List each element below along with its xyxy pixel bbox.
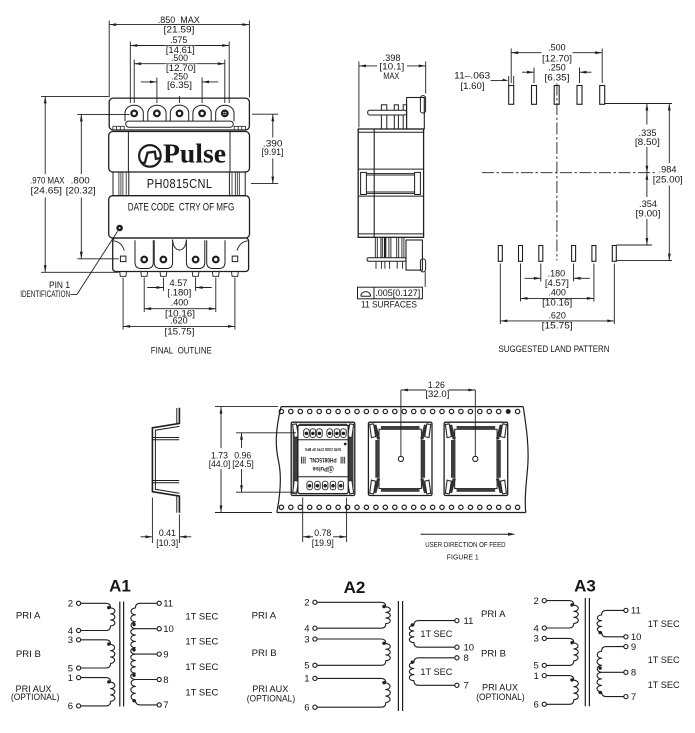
svg-text:11: 11 xyxy=(631,606,641,617)
svg-text:.005[0.127]: .005[0.127] xyxy=(375,288,420,298)
svg-text:[24.65]: [24.65] xyxy=(31,185,63,196)
svg-text:6: 6 xyxy=(534,700,539,711)
svg-text:8: 8 xyxy=(163,675,168,686)
svg-text:2: 2 xyxy=(68,599,73,610)
svg-text:1T SEC: 1T SEC xyxy=(420,667,452,678)
svg-text:(OPTIONAL): (OPTIONAL) xyxy=(11,692,60,702)
svg-text:PRI A: PRI A xyxy=(481,609,506,620)
svg-text:.400: .400 xyxy=(171,298,189,309)
svg-text:3: 3 xyxy=(304,634,309,645)
svg-text:PRI B: PRI B xyxy=(16,649,41,660)
svg-text:4: 4 xyxy=(534,623,539,634)
svg-text:PRI B: PRI B xyxy=(252,648,277,659)
svg-text:PRI A: PRI A xyxy=(252,611,277,622)
svg-text:[10.3]: [10.3] xyxy=(156,538,178,549)
svg-text:11: 11 xyxy=(163,599,173,610)
svg-text:(OPTIONAL): (OPTIONAL) xyxy=(476,692,525,702)
svg-text:[44.0]: [44.0] xyxy=(209,459,231,470)
svg-text:1T SEC: 1T SEC xyxy=(648,680,680,691)
svg-text:10: 10 xyxy=(464,643,475,654)
svg-text:8: 8 xyxy=(464,653,469,664)
svg-text:11: 11 xyxy=(464,616,474,627)
svg-text:DATE CODE CTRY OF MFG: DATE CODE CTRY OF MFG xyxy=(128,201,235,213)
svg-text:[32.0]: [32.0] xyxy=(425,389,449,400)
svg-text:1T SEC: 1T SEC xyxy=(420,629,452,640)
svg-text:[1.60]: [1.60] xyxy=(461,81,485,92)
svg-text:1T SEC: 1T SEC xyxy=(185,662,218,673)
svg-text:(OPTIONAL): (OPTIONAL) xyxy=(247,693,296,703)
svg-text:7: 7 xyxy=(631,692,636,703)
svg-text:7: 7 xyxy=(163,700,168,711)
svg-text:USER DIRECTION OF FEED: USER DIRECTION OF FEED xyxy=(425,540,506,549)
svg-text:A2: A2 xyxy=(344,578,366,597)
svg-text:1T SEC: 1T SEC xyxy=(648,619,680,630)
svg-text:1: 1 xyxy=(304,674,309,685)
svg-text:FINAL OUTLINE: FINAL OUTLINE xyxy=(151,345,212,356)
svg-text:[19.9]: [19.9] xyxy=(312,538,334,549)
svg-text:DATE CODE CTRY OF MFG: DATE CODE CTRY OF MFG xyxy=(305,447,341,452)
svg-text:PH0815CNL: PH0815CNL xyxy=(309,456,336,462)
svg-text:A3: A3 xyxy=(574,577,596,596)
svg-text:[15.75]: [15.75] xyxy=(165,326,195,337)
svg-text:PRI A: PRI A xyxy=(16,610,41,621)
svg-text:PH0815CNL: PH0815CNL xyxy=(147,176,213,191)
svg-text:FIGURE 1: FIGURE 1 xyxy=(447,553,479,562)
svg-text:8: 8 xyxy=(631,668,636,679)
svg-text:SUGGESTED LAND PATTERN: SUGGESTED LAND PATTERN xyxy=(499,344,610,355)
svg-text:1T SEC: 1T SEC xyxy=(185,611,218,622)
svg-text:[9.00]: [9.00] xyxy=(636,209,661,220)
svg-text:9: 9 xyxy=(163,649,168,660)
svg-text:4: 4 xyxy=(304,624,309,635)
svg-text:ⓈPulse: ⓈPulse xyxy=(312,465,333,474)
svg-text:3: 3 xyxy=(68,635,73,646)
svg-text:[20.32]: [20.32] xyxy=(66,185,96,196)
svg-text:A1: A1 xyxy=(109,577,131,596)
svg-text:1T SEC: 1T SEC xyxy=(185,688,218,699)
svg-text:Pulse: Pulse xyxy=(163,138,226,169)
svg-text:5: 5 xyxy=(304,661,309,672)
svg-text:2: 2 xyxy=(304,598,309,609)
svg-text:[10.16]: [10.16] xyxy=(542,297,572,308)
svg-text:PRI B: PRI B xyxy=(481,649,506,660)
svg-text:.620: .620 xyxy=(170,315,188,326)
svg-text:11 SURFACES: 11 SURFACES xyxy=(361,300,417,310)
svg-text:[15.75]: [15.75] xyxy=(542,320,573,331)
svg-text:[6.35]: [6.35] xyxy=(167,80,192,91)
svg-text:[6.35]: [6.35] xyxy=(545,72,570,83)
svg-text:3: 3 xyxy=(534,634,539,645)
svg-text:[25.00]: [25.00] xyxy=(653,175,683,186)
svg-text:1: 1 xyxy=(68,673,73,684)
svg-text:[24.5]: [24.5] xyxy=(232,459,254,470)
svg-text:1T SEC: 1T SEC xyxy=(648,655,680,666)
svg-text:6: 6 xyxy=(304,703,309,714)
svg-text:[9.91]: [9.91] xyxy=(262,147,284,158)
svg-text:2: 2 xyxy=(534,596,539,607)
svg-text:[21.59]: [21.59] xyxy=(164,25,195,36)
svg-text:10: 10 xyxy=(163,624,174,635)
svg-text:9: 9 xyxy=(631,642,636,653)
svg-text:6: 6 xyxy=(68,701,73,712)
svg-text:[8.50]: [8.50] xyxy=(635,137,660,148)
svg-text:MAX: MAX xyxy=(383,71,400,82)
svg-text:7: 7 xyxy=(464,681,469,692)
svg-text:1T SEC: 1T SEC xyxy=(185,637,218,648)
svg-text:.500: .500 xyxy=(548,43,566,54)
svg-text:1: 1 xyxy=(534,671,539,682)
svg-text:IDENTIFICATION: IDENTIFICATION xyxy=(20,289,70,299)
